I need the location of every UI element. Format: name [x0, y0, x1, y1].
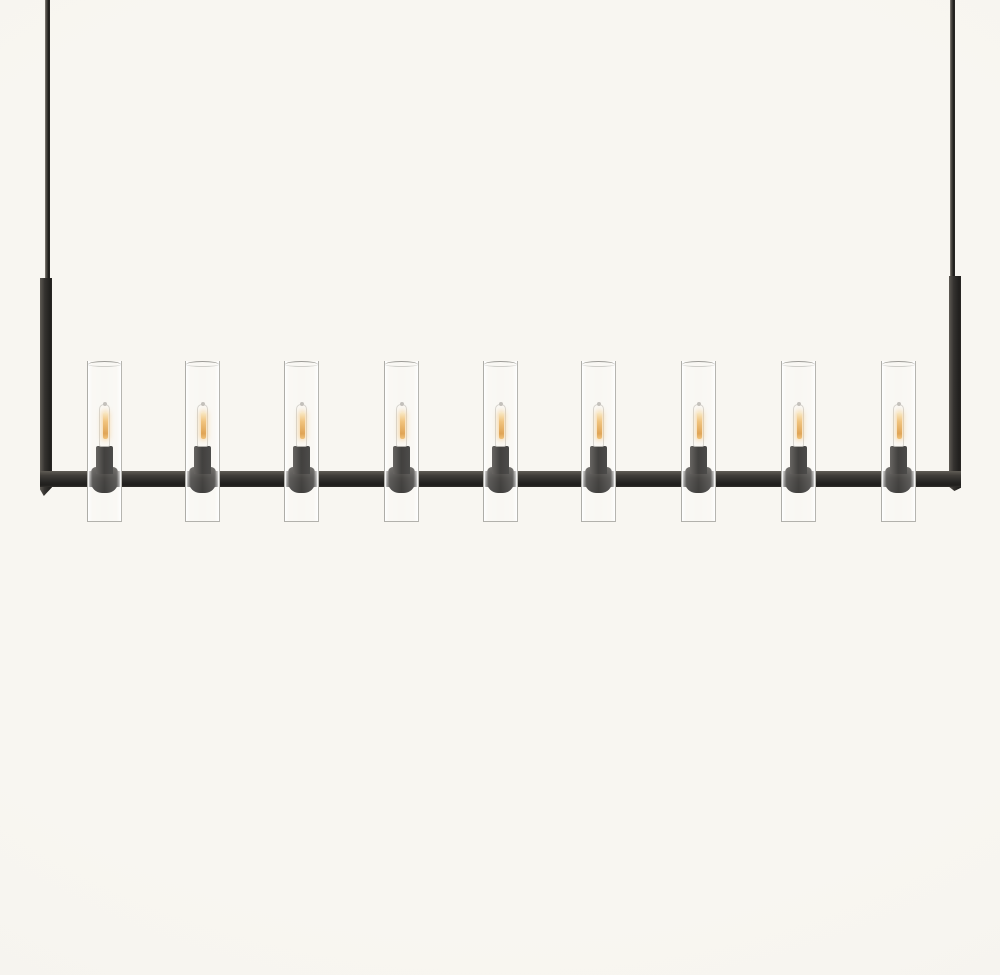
light-unit: [681, 361, 716, 522]
light-unit: [483, 361, 518, 522]
product-photo: [0, 0, 1000, 975]
glass-cylinder-shade: [681, 361, 716, 522]
light-unit: [185, 361, 220, 522]
glass-cylinder-shade: [284, 361, 319, 522]
glass-cylinder-shade: [185, 361, 220, 522]
glass-cylinder-shade: [384, 361, 419, 522]
ceiling-drop-rod-left: [45, 0, 50, 282]
ceiling-drop-rod-right: [950, 0, 955, 279]
light-unit: [384, 361, 419, 522]
glass-cylinder-shade: [781, 361, 816, 522]
frame-right-arm: [949, 276, 961, 491]
glass-cylinder-shade: [881, 361, 916, 522]
light-unit: [284, 361, 319, 522]
light-unit: [581, 361, 616, 522]
light-unit: [881, 361, 916, 522]
frame-left-arm: [40, 278, 52, 496]
light-unit: [781, 361, 816, 522]
glass-cylinder-shade: [483, 361, 518, 522]
light-unit: [87, 361, 122, 522]
glass-cylinder-shade: [581, 361, 616, 522]
glass-cylinder-shade: [87, 361, 122, 522]
